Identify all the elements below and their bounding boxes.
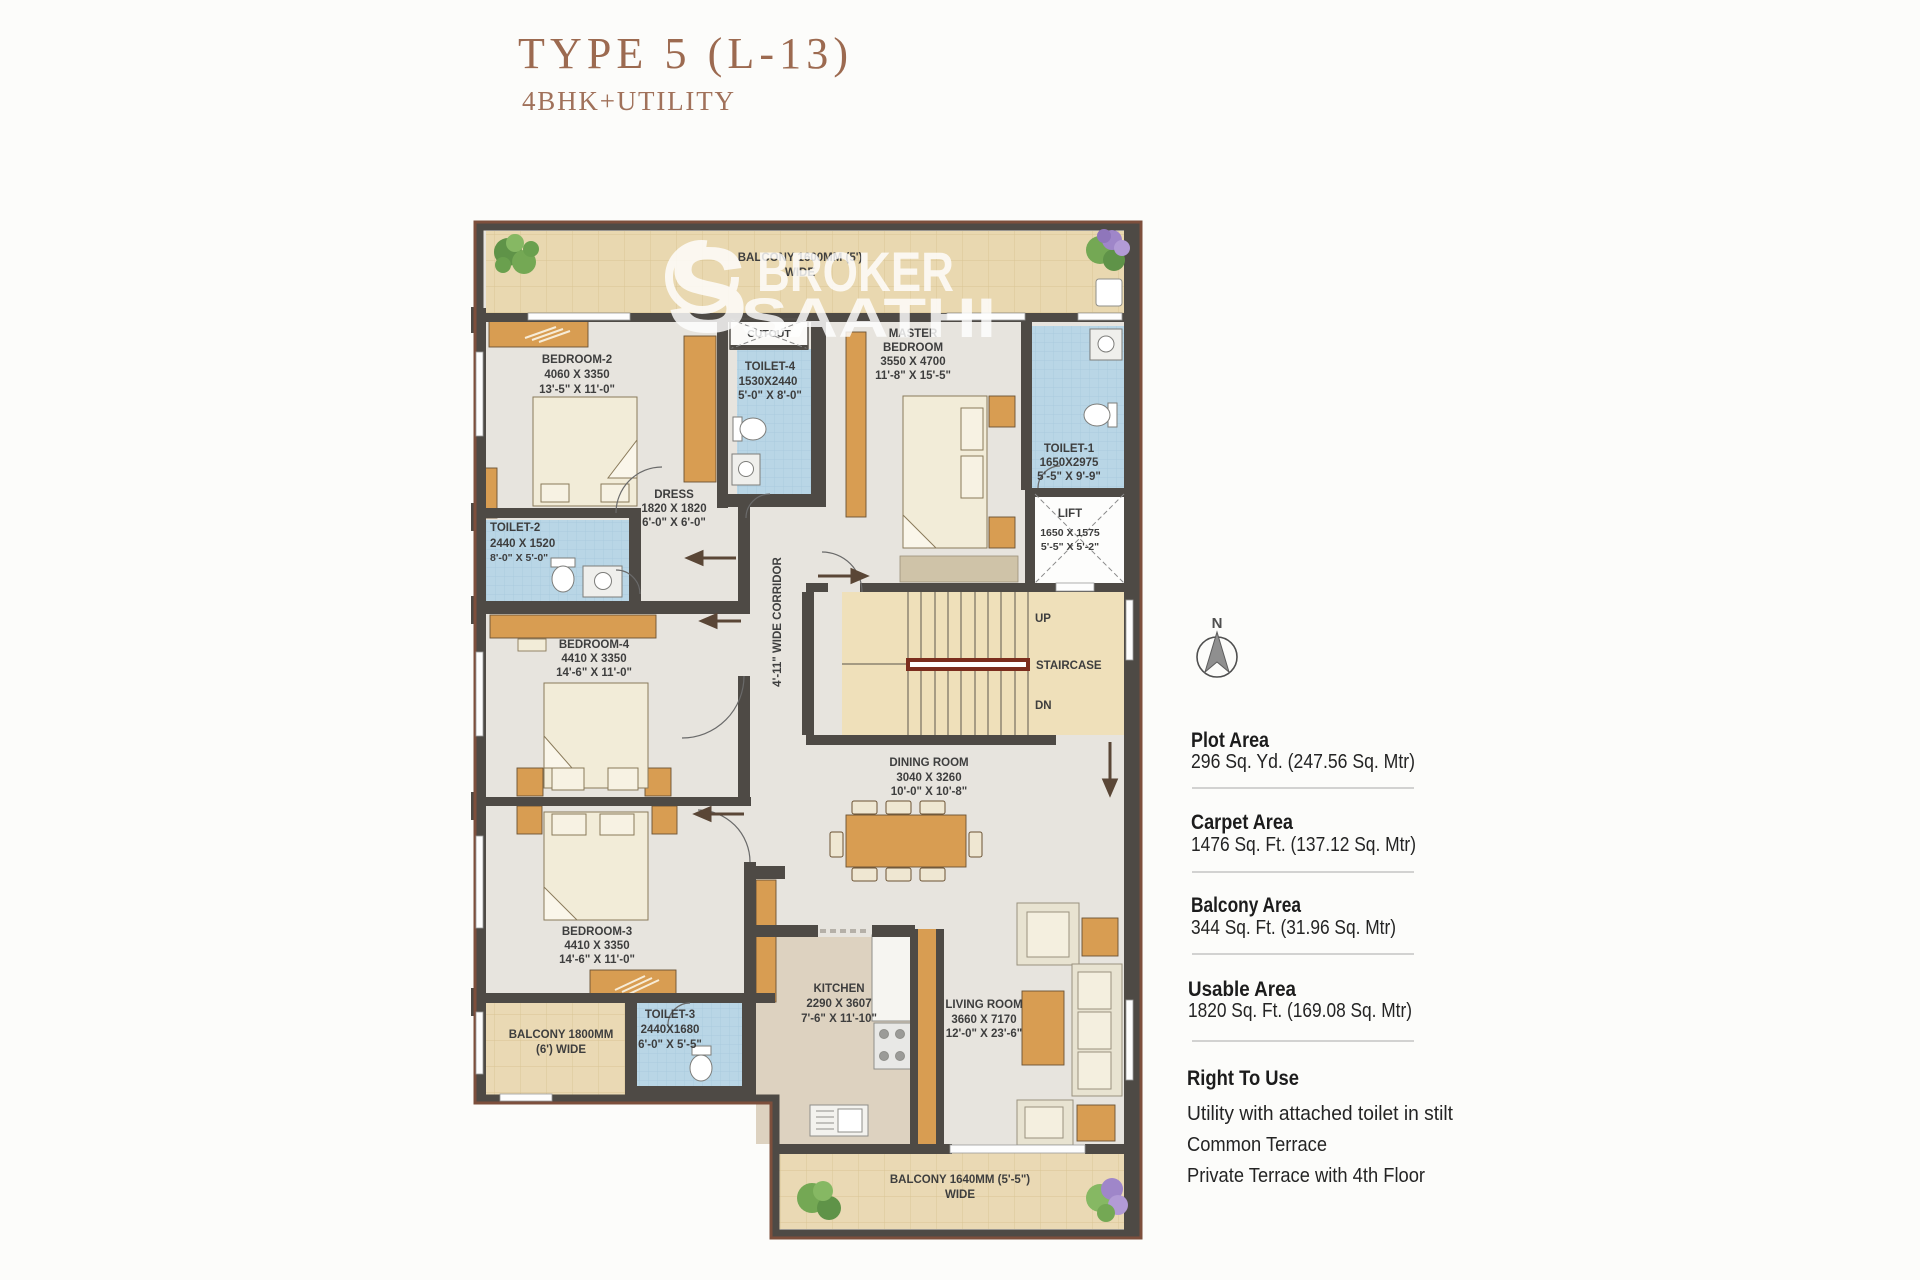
svg-text:1820 X 1820: 1820 X 1820 [641, 503, 706, 515]
svg-text:10'-0" X 10'-8": 10'-0" X 10'-8" [891, 786, 967, 798]
svg-text:3550 X 4700: 3550 X 4700 [880, 356, 945, 368]
svg-text:LIVING ROOM: LIVING ROOM [945, 999, 1022, 1011]
svg-text:TYPE 5 (L-13): TYPE 5 (L-13) [518, 29, 848, 78]
svg-text:Balcony Area: Balcony Area [1191, 893, 1302, 917]
svg-text:5'-5" X 9'-9": 5'-5" X 9'-9" [1037, 471, 1101, 483]
svg-text:5'-5" X 5'-2": 5'-5" X 5'-2" [1041, 541, 1099, 553]
svg-text:KITCHEN: KITCHEN [813, 983, 864, 995]
svg-text:344 Sq. Ft. (31.96 Sq. Mtr): 344 Sq. Ft. (31.96 Sq. Mtr) [1191, 916, 1396, 939]
svg-text:BEDROOM-3: BEDROOM-3 [562, 926, 632, 938]
svg-text:DN: DN [1035, 700, 1052, 712]
svg-text:BEDROOM-4: BEDROOM-4 [559, 639, 630, 651]
svg-text:Common Terrace: Common Terrace [1187, 1133, 1327, 1156]
svg-text:(6') WIDE: (6') WIDE [536, 1044, 586, 1056]
svg-text:1476 Sq. Ft. (137.12 Sq. Mtr): 1476 Sq. Ft. (137.12 Sq. Mtr) [1191, 833, 1416, 856]
svg-text:TOILET-2: TOILET-2 [490, 522, 540, 534]
svg-text:5'-0" X 8'-0": 5'-0" X 8'-0" [738, 390, 802, 402]
svg-text:Utility with attached toilet i: Utility with attached toilet in stilt [1187, 1102, 1453, 1125]
svg-text:TOILET-1: TOILET-1 [1044, 443, 1095, 455]
svg-text:14'-6" X 11'-0": 14'-6" X 11'-0" [559, 954, 635, 966]
svg-text:1650X2975: 1650X2975 [1040, 457, 1099, 469]
svg-text:N: N [1212, 615, 1223, 632]
svg-text:6'-0" X 5'-5": 6'-0" X 5'-5" [638, 1039, 702, 1051]
svg-text:3660 X 7170: 3660 X 7170 [951, 1014, 1016, 1026]
svg-text:DINING ROOM: DINING ROOM [889, 757, 968, 769]
svg-text:TOILET-3: TOILET-3 [645, 1009, 695, 1021]
svg-text:Usable Area: Usable Area [1188, 977, 1297, 1001]
svg-text:BEDROOM-2: BEDROOM-2 [542, 354, 612, 366]
svg-text:3040 X 3260: 3040 X 3260 [896, 772, 961, 784]
svg-text:BALCONY 1800MM: BALCONY 1800MM [509, 1029, 614, 1041]
svg-text:SAATHI: SAATHI [741, 286, 996, 349]
svg-text:BALCONY 1640MM (5'-5"): BALCONY 1640MM (5'-5") [890, 1174, 1030, 1186]
svg-text:Carpet Area: Carpet Area [1191, 810, 1294, 834]
svg-text:4060 X 3350: 4060 X 3350 [544, 369, 609, 381]
svg-text:1530X2440: 1530X2440 [739, 376, 798, 388]
svg-text:1650 X 1575: 1650 X 1575 [1040, 527, 1100, 539]
svg-text:2440X1680: 2440X1680 [641, 1024, 700, 1036]
svg-text:STAIRCASE: STAIRCASE [1036, 660, 1102, 672]
svg-text:4BHK+UTILITY: 4BHK+UTILITY [522, 86, 734, 116]
svg-text:4'-11" WIDE CORRIDOR: 4'-11" WIDE CORRIDOR [772, 557, 784, 687]
svg-text:DRESS: DRESS [654, 489, 694, 501]
svg-text:TOILET-4: TOILET-4 [745, 361, 796, 373]
svg-text:12'-0" X 23'-6": 12'-0" X 23'-6" [946, 1028, 1022, 1040]
svg-text:WIDE: WIDE [945, 1189, 975, 1201]
svg-text:2290 X 3607: 2290 X 3607 [806, 998, 871, 1010]
svg-text:UP: UP [1035, 613, 1051, 625]
svg-text:LIFT: LIFT [1058, 508, 1082, 520]
svg-text:13'-5" X 11'-0": 13'-5" X 11'-0" [539, 384, 615, 396]
svg-text:6'-0" X 6'-0": 6'-0" X 6'-0" [642, 517, 706, 529]
svg-text:Private Terrace with 4th Floor: Private Terrace with 4th Floor [1187, 1164, 1425, 1187]
svg-text:S: S [667, 222, 748, 358]
svg-text:1820 Sq. Ft. (169.08 Sq. Mtr): 1820 Sq. Ft. (169.08 Sq. Mtr) [1188, 999, 1412, 1022]
svg-text:8'-0" X 5'-0": 8'-0" X 5'-0" [490, 552, 548, 564]
svg-text:296 Sq. Yd. (247.56 Sq. Mtr): 296 Sq. Yd. (247.56 Sq. Mtr) [1191, 750, 1415, 773]
svg-text:2440 X 1520: 2440 X 1520 [490, 538, 555, 550]
svg-text:11'-8" X 15'-5": 11'-8" X 15'-5" [875, 370, 951, 382]
svg-text:Plot Area: Plot Area [1191, 728, 1270, 752]
svg-text:4410 X 3350: 4410 X 3350 [564, 940, 629, 952]
svg-text:7'-6" X 11'-10": 7'-6" X 11'-10" [801, 1013, 877, 1025]
svg-text:4410 X 3350: 4410 X 3350 [561, 653, 626, 665]
svg-text:14'-6" X 11'-0": 14'-6" X 11'-0" [556, 667, 632, 679]
svg-text:Right To Use: Right To Use [1187, 1066, 1299, 1090]
